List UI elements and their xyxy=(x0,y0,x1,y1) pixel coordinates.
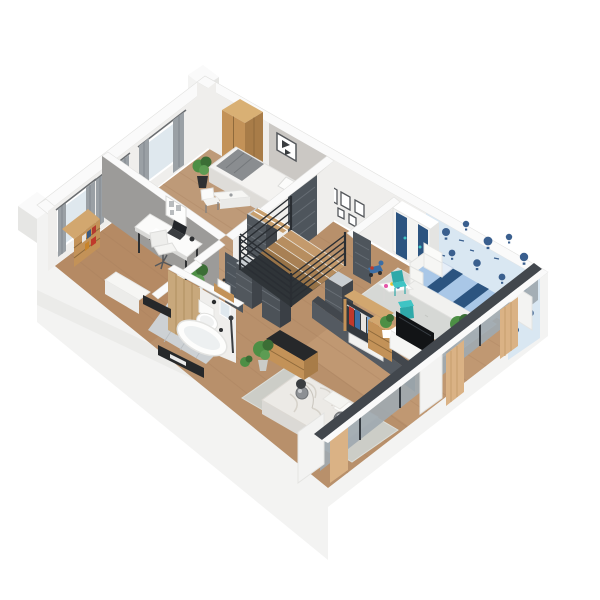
desk-item xyxy=(229,193,232,196)
toy-wheel xyxy=(378,271,382,275)
hanging-clothes xyxy=(355,309,360,330)
plant-leaves xyxy=(386,314,394,322)
wardrobe-knob xyxy=(404,237,407,240)
plant-leaves xyxy=(260,350,270,360)
toy-wheel xyxy=(369,273,373,277)
stool xyxy=(296,379,306,389)
plant-leaves xyxy=(263,340,274,351)
lamp-highlight xyxy=(298,389,302,393)
toy xyxy=(384,284,388,288)
hanging-clothes xyxy=(349,306,354,327)
balloon-icon xyxy=(506,234,512,244)
plant-pot xyxy=(382,330,391,338)
floor-plan-render xyxy=(0,0,600,600)
tub-tap xyxy=(219,328,223,332)
floor-plan-svg xyxy=(0,0,600,600)
plant-leaves xyxy=(199,165,209,175)
wardrobe-knob xyxy=(419,246,422,249)
hanging-clothes xyxy=(361,313,366,333)
chair-back xyxy=(150,230,168,247)
shower-head xyxy=(229,316,234,321)
desk-lamp xyxy=(190,237,195,242)
toilet-paper-holder xyxy=(212,300,216,304)
toy-seat xyxy=(370,266,374,270)
wardrobe-door-navy xyxy=(396,212,407,260)
plant-leaves xyxy=(246,356,253,363)
chair-back xyxy=(391,270,404,283)
toy-head xyxy=(379,261,384,266)
basin-tap xyxy=(223,279,226,282)
